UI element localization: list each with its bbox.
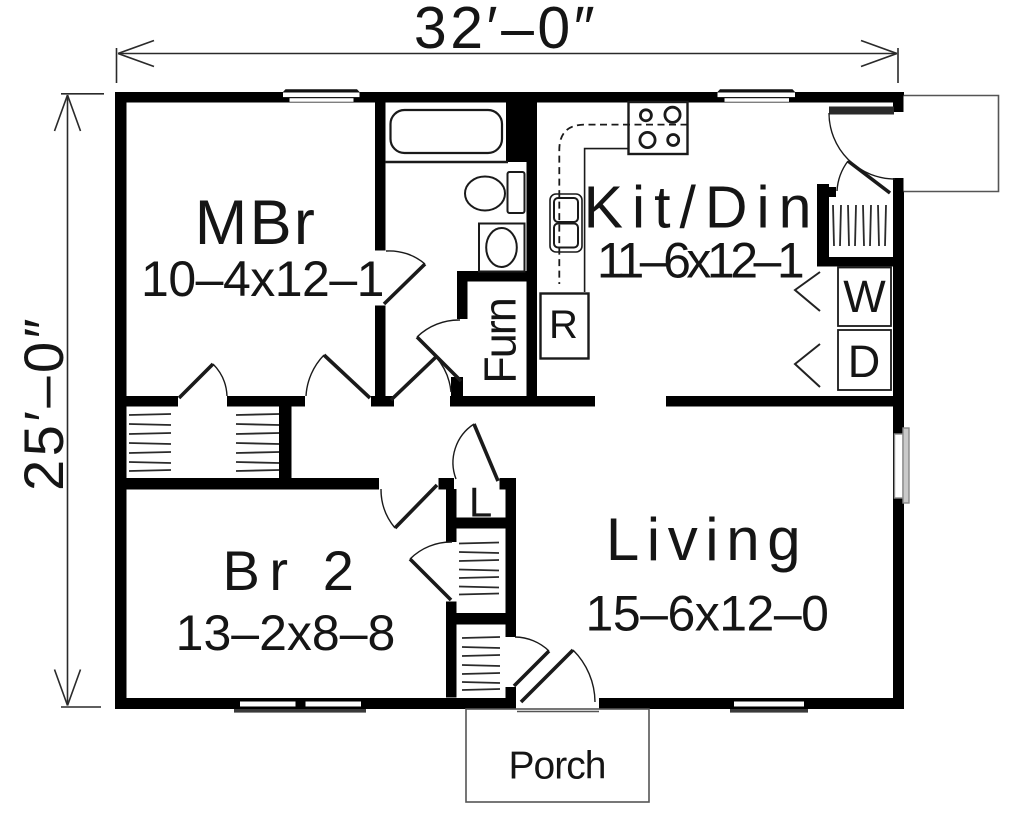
svg-text:15–6x12–0: 15–6x12–0 [586, 586, 829, 642]
svg-text:32′–0″: 32′–0″ [414, 0, 598, 61]
svg-text:Living: Living [606, 506, 808, 573]
svg-text:25′–0″: 25′–0″ [12, 315, 75, 491]
svg-text:L: L [469, 479, 492, 526]
svg-text:Br 2: Br 2 [222, 539, 363, 602]
svg-text:Porch: Porch [509, 745, 606, 788]
svg-text:MBr: MBr [195, 188, 317, 258]
svg-text:W: W [843, 271, 886, 322]
svg-text:10–4x12–1: 10–4x12–1 [141, 251, 384, 307]
svg-text:R: R [549, 303, 578, 347]
svg-text:11–6x12–1: 11–6x12–1 [597, 233, 803, 289]
svg-text:D: D [848, 336, 881, 387]
svg-text:Furn: Furn [475, 299, 526, 384]
svg-text:13–2x8–8: 13–2x8–8 [176, 605, 396, 661]
svg-text:Kit/Din: Kit/Din [584, 175, 821, 241]
